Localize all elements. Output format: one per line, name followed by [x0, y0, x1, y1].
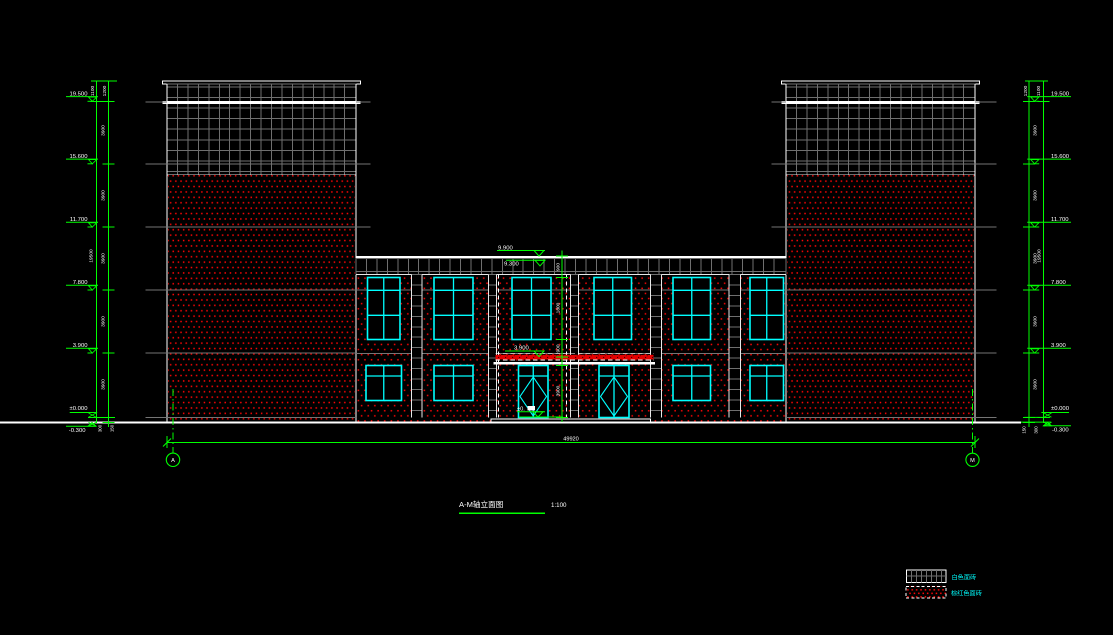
svg-text:3900: 3900	[100, 316, 106, 327]
svg-text:900: 900	[556, 344, 562, 352]
svg-text:9.900: 9.900	[498, 245, 513, 251]
svg-text:A: A	[171, 458, 175, 464]
svg-text:棕红色面砖: 棕红色面砖	[951, 590, 982, 598]
svg-text:19500: 19500	[1037, 249, 1043, 263]
svg-text:49920: 49920	[563, 437, 579, 443]
svg-text:7.800: 7.800	[73, 280, 88, 286]
svg-text:1200: 1200	[102, 85, 108, 96]
svg-text:150: 150	[110, 424, 115, 432]
svg-text:3900: 3900	[100, 190, 106, 201]
svg-text:3.900: 3.900	[1051, 343, 1066, 349]
svg-text:19.500: 19.500	[1051, 91, 1070, 97]
svg-text:3900: 3900	[100, 379, 106, 390]
svg-text:900: 900	[556, 263, 562, 271]
svg-text:300: 300	[1034, 426, 1039, 434]
svg-text:300: 300	[98, 424, 103, 432]
svg-text:15.600: 15.600	[69, 154, 88, 160]
svg-text:150: 150	[1022, 426, 1027, 434]
svg-text:3900: 3900	[556, 385, 562, 396]
svg-text:±0.000: ±0.000	[1051, 406, 1070, 412]
svg-text:-0.300: -0.300	[1052, 428, 1069, 434]
svg-text:7.800: 7.800	[1051, 280, 1066, 286]
svg-text:白色面砖: 白色面砖	[952, 574, 977, 582]
svg-text:3900: 3900	[100, 253, 106, 264]
svg-text:3900: 3900	[1033, 190, 1039, 201]
svg-text:3900: 3900	[1033, 316, 1039, 327]
svg-text:3900: 3900	[1033, 125, 1039, 136]
svg-text:±0.000: ±0.000	[70, 406, 89, 412]
svg-text:1:100: 1:100	[551, 502, 567, 509]
svg-text:11.700: 11.700	[1051, 217, 1069, 223]
svg-text:19500: 19500	[89, 249, 95, 263]
svg-text:1800: 1800	[556, 302, 562, 313]
svg-text:A-M轴立面图: A-M轴立面图	[459, 499, 503, 509]
svg-text:1100: 1100	[90, 86, 96, 97]
svg-text:9.300: 9.300	[504, 262, 519, 268]
svg-text:15.600: 15.600	[1051, 154, 1070, 160]
svg-text:3.900: 3.900	[514, 345, 529, 351]
svg-text:-0.300: -0.300	[69, 428, 86, 434]
svg-text:3900: 3900	[100, 125, 106, 136]
svg-text:1100: 1100	[1036, 86, 1042, 97]
svg-text:3.900: 3.900	[73, 343, 88, 349]
svg-text:3900: 3900	[1033, 379, 1039, 390]
svg-text:19.500: 19.500	[69, 91, 88, 97]
svg-text:1200: 1200	[1023, 85, 1029, 96]
svg-text:11.700: 11.700	[70, 217, 88, 223]
svg-text:M: M	[970, 458, 975, 464]
